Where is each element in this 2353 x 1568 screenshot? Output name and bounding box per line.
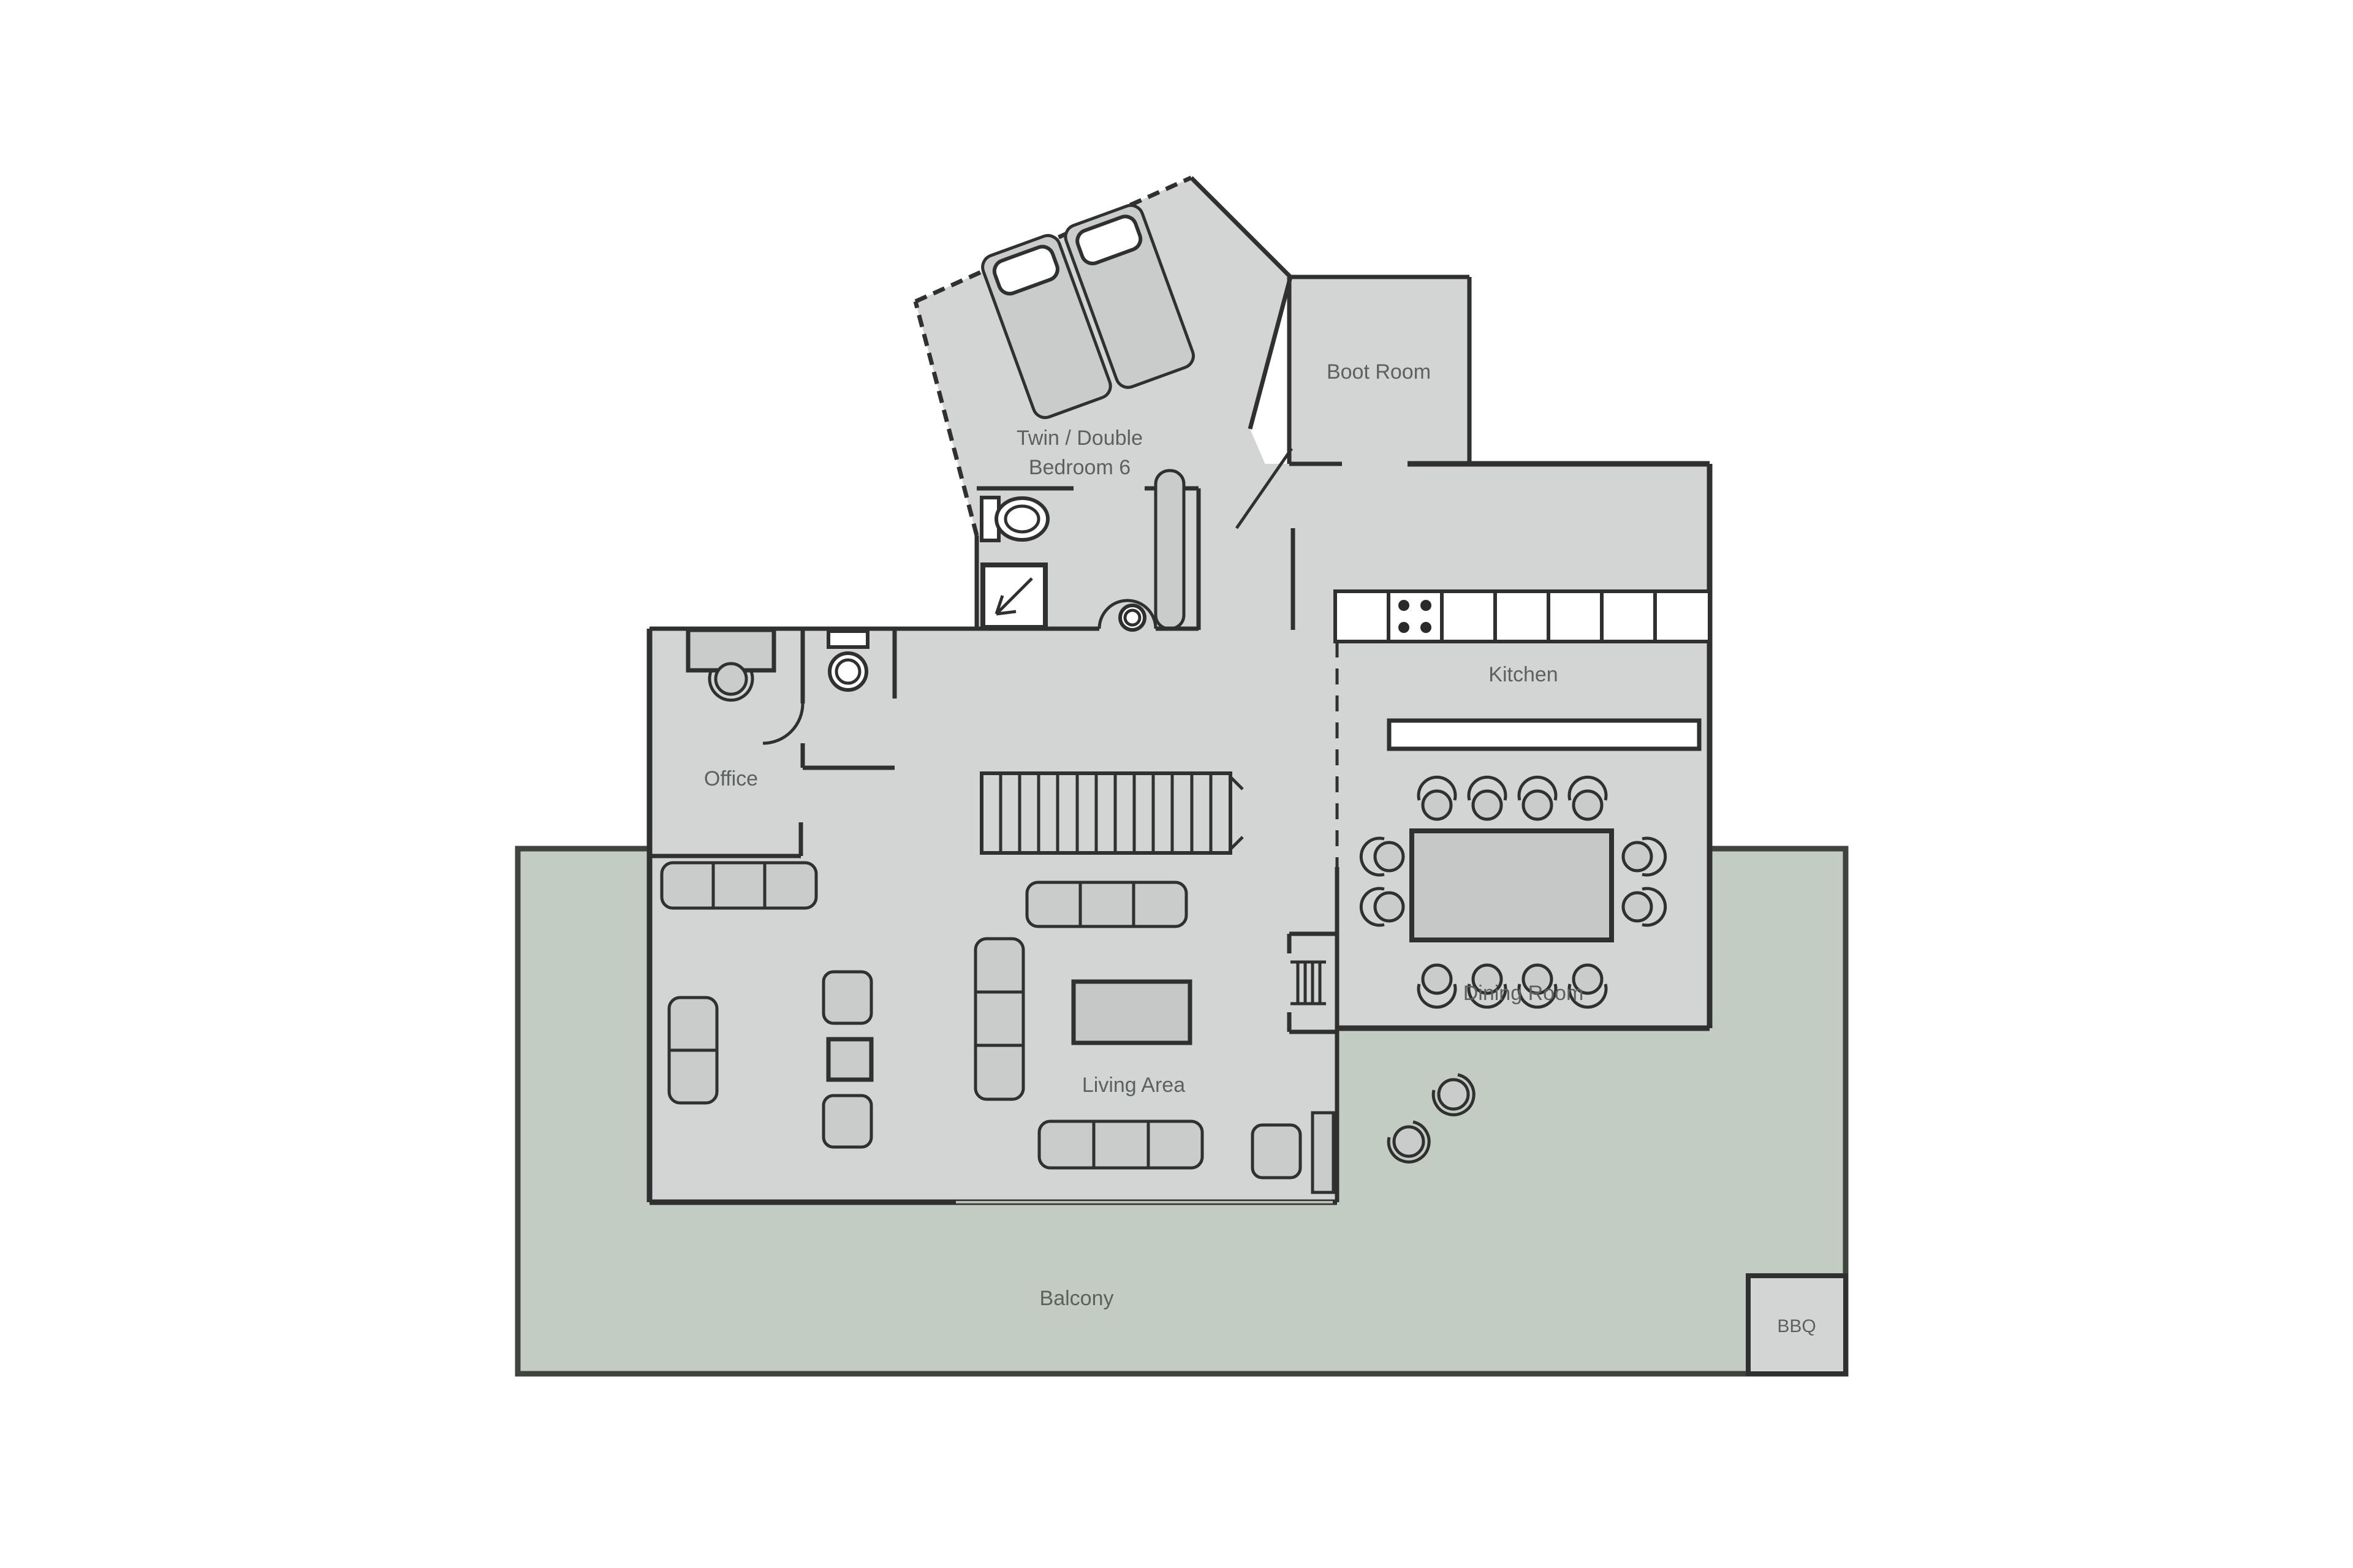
armchair-icon — [824, 1096, 871, 1147]
coffee-table-icon — [1074, 982, 1190, 1043]
dining-table-icon — [1412, 831, 1612, 940]
bedroom6-label-line2: Bedroom 6 — [1029, 456, 1131, 479]
side-table-icon — [828, 1039, 871, 1080]
bedroom6-label-line1: Twin / Double — [1017, 426, 1143, 450]
armchair-icon — [824, 972, 871, 1023]
office-chair-icon — [716, 664, 746, 694]
tv-unit-icon — [1313, 1113, 1333, 1192]
sofa-3-seat-vertical-icon — [976, 939, 1023, 1099]
kitchen-island-icon — [1389, 721, 1699, 749]
sofa-3-seat-top-icon — [662, 863, 816, 908]
corridor-floor — [1199, 464, 1337, 648]
bbq-label: BBQ — [1777, 1316, 1816, 1336]
wc-toilet-cistern-icon — [828, 631, 868, 647]
floor-plan-page: Twin / Double Bedroom 6 Boot Room — [0, 0, 2353, 1568]
office-label: Office — [704, 767, 758, 790]
living-office-floor — [650, 629, 1337, 1202]
sofa-3-seat-bottom-icon — [1039, 1121, 1202, 1168]
floor-plan-canvas: Twin / Double Bedroom 6 Boot Room — [0, 0, 2353, 1568]
living-area-label: Living Area — [1082, 1074, 1185, 1097]
sofa-3-seat-stairs-icon — [1027, 882, 1186, 926]
dining-room-label: Dining Room — [1463, 982, 1584, 1005]
wardrobe-icon — [1156, 471, 1184, 629]
kitchen-label: Kitchen — [1488, 663, 1558, 686]
boot-room-label: Boot Room — [1327, 360, 1431, 384]
armchair-icon — [1252, 1125, 1300, 1178]
balcony-label: Balcony — [1040, 1287, 1114, 1310]
